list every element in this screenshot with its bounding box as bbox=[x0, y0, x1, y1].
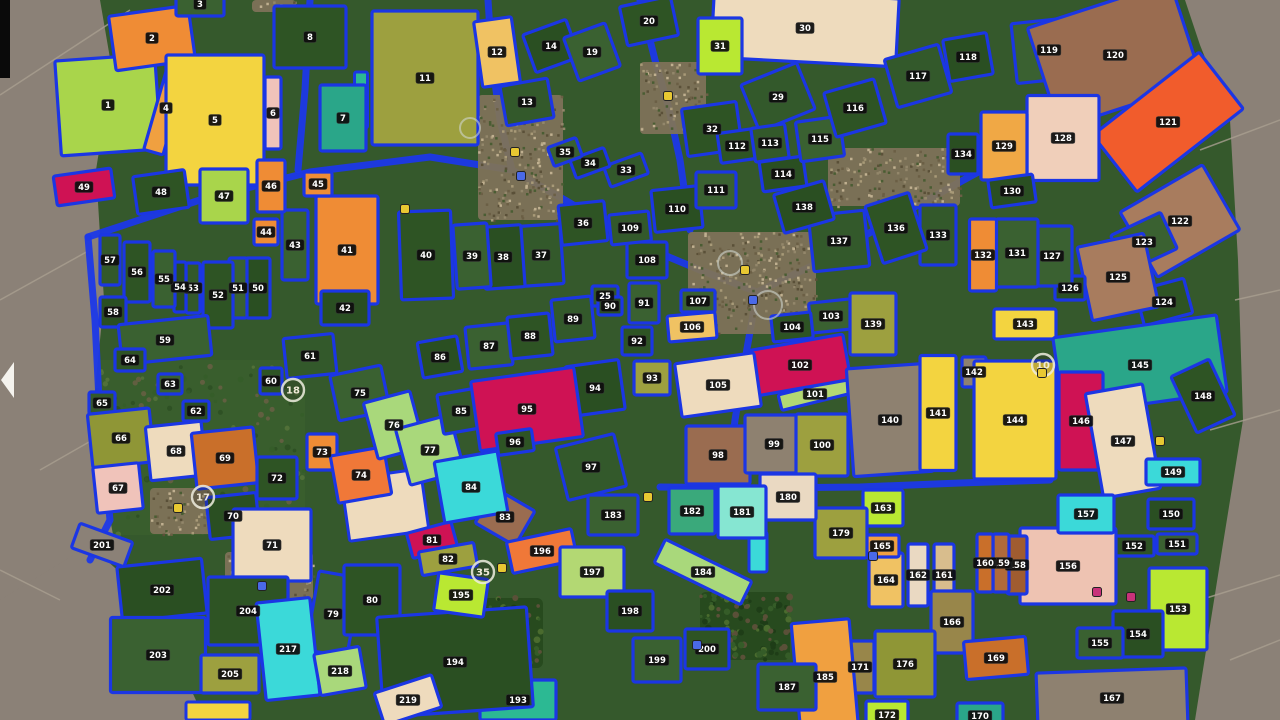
field-label-82: 82 bbox=[439, 554, 457, 566]
svg-text:63: 63 bbox=[164, 380, 176, 390]
field-label-54: 54 bbox=[171, 282, 189, 294]
svg-text:194: 194 bbox=[446, 658, 464, 668]
svg-text:92: 92 bbox=[631, 337, 643, 347]
svg-text:41: 41 bbox=[341, 246, 353, 256]
field-label-133: 133 bbox=[926, 230, 950, 242]
svg-text:39: 39 bbox=[466, 252, 478, 262]
svg-text:52: 52 bbox=[212, 291, 224, 301]
svg-text:196: 196 bbox=[533, 547, 551, 557]
field-label-94: 94 bbox=[586, 383, 604, 395]
svg-text:103: 103 bbox=[822, 312, 840, 322]
poi-badge-icon[interactable] bbox=[644, 493, 653, 502]
field-label-76: 76 bbox=[385, 420, 403, 432]
field-label-98: 98 bbox=[709, 450, 727, 462]
field-label-35: 35 bbox=[556, 147, 574, 159]
field-label-132: 132 bbox=[971, 250, 995, 262]
svg-text:12: 12 bbox=[491, 48, 503, 58]
field-label-160: 160 bbox=[973, 558, 997, 570]
poi-badge-icon[interactable] bbox=[258, 582, 267, 591]
svg-text:51: 51 bbox=[232, 284, 244, 294]
field-label-193: 193 bbox=[506, 695, 530, 707]
svg-text:68: 68 bbox=[170, 447, 182, 457]
field-label-99: 99 bbox=[765, 439, 783, 451]
svg-text:82: 82 bbox=[442, 555, 454, 565]
field-label-138: 138 bbox=[792, 202, 816, 214]
svg-text:133: 133 bbox=[929, 231, 947, 241]
svg-text:67: 67 bbox=[112, 484, 124, 494]
svg-text:34: 34 bbox=[584, 159, 596, 169]
field-label-139: 139 bbox=[861, 319, 885, 331]
svg-text:198: 198 bbox=[621, 607, 639, 617]
svg-text:59: 59 bbox=[159, 336, 171, 346]
svg-text:50: 50 bbox=[252, 284, 264, 294]
field-label-218: 218 bbox=[328, 666, 352, 678]
svg-text:17: 17 bbox=[196, 493, 210, 504]
svg-text:6: 6 bbox=[270, 109, 276, 119]
field-label-129: 129 bbox=[992, 141, 1016, 153]
svg-text:13: 13 bbox=[521, 98, 533, 108]
field-label-171: 171 bbox=[848, 662, 872, 674]
field-label-120: 120 bbox=[1103, 50, 1127, 62]
svg-text:100: 100 bbox=[813, 441, 831, 451]
field-label-217: 217 bbox=[276, 644, 300, 656]
svg-text:32: 32 bbox=[706, 125, 718, 135]
svg-text:36: 36 bbox=[577, 219, 589, 229]
field-label-112: 112 bbox=[725, 141, 749, 153]
field-label-170: 170 bbox=[968, 711, 992, 720]
field-label-69: 69 bbox=[216, 453, 234, 465]
field-label-134: 134 bbox=[951, 149, 975, 161]
field-label-110: 110 bbox=[665, 204, 689, 216]
svg-text:118: 118 bbox=[959, 53, 977, 63]
svg-text:11: 11 bbox=[419, 74, 431, 84]
field-label-5: 5 bbox=[209, 115, 222, 127]
svg-text:69: 69 bbox=[219, 454, 231, 464]
field-label-157: 157 bbox=[1074, 509, 1098, 521]
svg-text:40: 40 bbox=[420, 251, 432, 261]
field-label-161: 161 bbox=[932, 570, 956, 582]
field-label-108: 108 bbox=[635, 255, 659, 267]
field-map-screen: 1234567811121314192025293031323334353637… bbox=[0, 0, 1280, 720]
field-label-74: 74 bbox=[352, 470, 370, 482]
poi-badge-icon[interactable] bbox=[749, 296, 758, 305]
svg-text:185: 185 bbox=[816, 673, 834, 683]
field-label-145: 145 bbox=[1128, 360, 1152, 372]
field-label-58: 58 bbox=[104, 307, 122, 319]
svg-text:97: 97 bbox=[585, 463, 597, 473]
field-map[interactable]: 1234567811121314192025293031323334353637… bbox=[0, 0, 1280, 720]
svg-text:30: 30 bbox=[799, 24, 811, 34]
svg-text:187: 187 bbox=[778, 683, 796, 693]
poi-badge-icon[interactable] bbox=[498, 564, 507, 573]
field-label-93: 93 bbox=[643, 373, 661, 385]
svg-text:155: 155 bbox=[1091, 639, 1109, 649]
poi-badge-icon[interactable] bbox=[693, 641, 702, 650]
field-label-60: 60 bbox=[262, 376, 280, 388]
svg-text:18: 18 bbox=[286, 386, 300, 397]
field-label-102: 102 bbox=[788, 360, 812, 372]
field-label-125: 125 bbox=[1106, 272, 1130, 284]
field-label-153: 153 bbox=[1166, 604, 1190, 616]
poi-badge-icon[interactable] bbox=[1038, 369, 1047, 378]
svg-text:127: 127 bbox=[1043, 252, 1061, 262]
svg-text:85: 85 bbox=[455, 407, 467, 417]
field-label-196: 196 bbox=[530, 546, 554, 558]
field-label-6: 6 bbox=[267, 108, 280, 120]
svg-text:77: 77 bbox=[424, 446, 436, 456]
field-label-121: 121 bbox=[1156, 117, 1180, 129]
field-patch[interactable] bbox=[186, 702, 250, 720]
field-label-109: 109 bbox=[618, 223, 642, 235]
svg-text:119: 119 bbox=[1040, 46, 1058, 56]
field-label-202: 202 bbox=[150, 585, 174, 597]
field-label-7: 7 bbox=[337, 113, 350, 125]
svg-text:20: 20 bbox=[643, 17, 655, 27]
field-label-30: 30 bbox=[796, 23, 814, 35]
svg-text:73: 73 bbox=[316, 448, 328, 458]
svg-text:143: 143 bbox=[1016, 320, 1034, 330]
poi-marker-17[interactable]: 17 bbox=[192, 486, 214, 508]
svg-text:64: 64 bbox=[124, 356, 136, 366]
svg-text:141: 141 bbox=[929, 409, 947, 419]
svg-text:171: 171 bbox=[851, 663, 869, 673]
svg-text:80: 80 bbox=[366, 596, 378, 606]
field-label-12: 12 bbox=[488, 47, 506, 59]
svg-text:115: 115 bbox=[811, 135, 829, 145]
field-label-111: 111 bbox=[704, 185, 728, 197]
field-label-204: 204 bbox=[236, 606, 260, 618]
svg-text:132: 132 bbox=[974, 251, 992, 261]
svg-text:145: 145 bbox=[1131, 361, 1149, 371]
field-label-48: 48 bbox=[152, 187, 170, 199]
field-label-19: 19 bbox=[583, 47, 601, 59]
poi-badge-icon[interactable] bbox=[401, 205, 410, 214]
svg-text:88: 88 bbox=[524, 332, 536, 342]
svg-text:136: 136 bbox=[887, 224, 905, 234]
svg-text:87: 87 bbox=[483, 342, 495, 352]
field-label-115: 115 bbox=[808, 134, 832, 146]
svg-text:204: 204 bbox=[239, 607, 257, 617]
svg-text:91: 91 bbox=[638, 299, 650, 309]
field-label-72: 72 bbox=[268, 473, 286, 485]
svg-text:201: 201 bbox=[93, 541, 111, 551]
field-label-149: 149 bbox=[1161, 467, 1185, 479]
field-label-155: 155 bbox=[1088, 638, 1112, 650]
svg-text:76: 76 bbox=[388, 421, 400, 431]
svg-text:33: 33 bbox=[620, 166, 632, 176]
svg-text:218: 218 bbox=[331, 667, 349, 677]
svg-text:38: 38 bbox=[497, 253, 509, 263]
field-label-45: 45 bbox=[309, 179, 327, 191]
field-label-83: 83 bbox=[496, 512, 514, 524]
field-label-219: 219 bbox=[396, 695, 420, 707]
field-label-199: 199 bbox=[645, 655, 669, 667]
poi-badge-icon[interactable] bbox=[1093, 588, 1102, 597]
svg-text:142: 142 bbox=[965, 368, 983, 378]
svg-text:116: 116 bbox=[846, 104, 864, 114]
field-label-51: 51 bbox=[229, 283, 247, 295]
field-label-203: 203 bbox=[146, 650, 170, 662]
field-label-106: 106 bbox=[680, 322, 704, 334]
field-label-144: 144 bbox=[1003, 415, 1027, 427]
svg-text:202: 202 bbox=[153, 586, 171, 596]
field-label-97: 97 bbox=[582, 462, 600, 474]
svg-text:146: 146 bbox=[1072, 417, 1090, 427]
field-label-84: 84 bbox=[462, 482, 480, 494]
svg-text:106: 106 bbox=[683, 323, 701, 333]
field-label-67: 67 bbox=[109, 483, 127, 495]
field-label-107: 107 bbox=[686, 296, 710, 308]
field-label-198: 198 bbox=[618, 606, 642, 618]
svg-text:152: 152 bbox=[1125, 542, 1143, 552]
svg-text:60: 60 bbox=[265, 377, 277, 387]
field-label-185: 185 bbox=[813, 672, 837, 684]
field-label-43: 43 bbox=[286, 240, 304, 252]
svg-text:182: 182 bbox=[683, 507, 701, 517]
field-label-182: 182 bbox=[680, 506, 704, 518]
field-label-81: 81 bbox=[423, 535, 441, 547]
field-label-33: 33 bbox=[617, 165, 635, 177]
svg-text:205: 205 bbox=[221, 670, 239, 680]
svg-text:79: 79 bbox=[327, 610, 339, 620]
field-label-197: 197 bbox=[580, 567, 604, 579]
poi-badge-icon[interactable] bbox=[1156, 437, 1165, 446]
field-label-68: 68 bbox=[167, 446, 185, 458]
svg-text:165: 165 bbox=[873, 542, 891, 552]
svg-text:57: 57 bbox=[104, 256, 116, 266]
field-label-37: 37 bbox=[532, 250, 550, 262]
field-label-64: 64 bbox=[121, 355, 139, 367]
field-label-184: 184 bbox=[691, 567, 715, 579]
field-label-131: 131 bbox=[1005, 248, 1029, 260]
field-label-126: 126 bbox=[1058, 283, 1082, 295]
field-label-195: 195 bbox=[449, 590, 473, 602]
svg-text:157: 157 bbox=[1077, 510, 1095, 520]
svg-text:147: 147 bbox=[1114, 437, 1132, 447]
field-label-130: 130 bbox=[1000, 186, 1024, 198]
field-label-57: 57 bbox=[101, 255, 119, 267]
svg-text:138: 138 bbox=[795, 203, 813, 213]
svg-text:56: 56 bbox=[131, 268, 143, 278]
field-label-141: 141 bbox=[926, 408, 950, 420]
field-label-113: 113 bbox=[758, 138, 782, 150]
field-label-136: 136 bbox=[884, 223, 908, 235]
svg-text:74: 74 bbox=[355, 471, 367, 481]
svg-text:108: 108 bbox=[638, 256, 656, 266]
svg-text:86: 86 bbox=[434, 353, 446, 363]
svg-text:172: 172 bbox=[878, 711, 896, 720]
svg-text:55: 55 bbox=[158, 275, 170, 285]
svg-text:75: 75 bbox=[354, 389, 366, 399]
svg-text:170: 170 bbox=[971, 712, 989, 720]
field-label-61: 61 bbox=[301, 351, 319, 363]
field-label-47: 47 bbox=[215, 191, 233, 203]
svg-text:35: 35 bbox=[476, 568, 490, 579]
field-label-187: 187 bbox=[775, 682, 799, 694]
svg-text:114: 114 bbox=[774, 170, 792, 180]
field-label-92: 92 bbox=[628, 336, 646, 348]
field-label-146: 146 bbox=[1069, 416, 1093, 428]
field-label-50: 50 bbox=[249, 283, 267, 295]
svg-text:109: 109 bbox=[621, 224, 639, 234]
field-label-56: 56 bbox=[128, 267, 146, 279]
field-label-75: 75 bbox=[351, 388, 369, 400]
poi-badge-icon[interactable] bbox=[664, 92, 673, 101]
field-label-8: 8 bbox=[304, 32, 317, 44]
field-label-194: 194 bbox=[443, 657, 467, 669]
field-label-96: 96 bbox=[506, 437, 524, 449]
svg-text:43: 43 bbox=[289, 241, 301, 251]
svg-text:151: 151 bbox=[1168, 540, 1186, 550]
svg-text:61: 61 bbox=[304, 352, 316, 362]
field-label-140: 140 bbox=[878, 415, 902, 427]
svg-text:150: 150 bbox=[1162, 510, 1180, 520]
field-label-122: 122 bbox=[1168, 216, 1192, 228]
field-label-80: 80 bbox=[363, 595, 381, 607]
field-label-90: 90 bbox=[601, 301, 619, 313]
field-label-152: 152 bbox=[1122, 541, 1146, 553]
svg-text:65: 65 bbox=[96, 399, 108, 409]
svg-text:113: 113 bbox=[761, 139, 779, 149]
poi-marker-35[interactable]: 35 bbox=[472, 561, 494, 583]
field-label-123: 123 bbox=[1132, 237, 1156, 249]
poi-marker-18[interactable]: 18 bbox=[282, 379, 304, 401]
svg-text:107: 107 bbox=[689, 297, 707, 307]
field-label-66: 66 bbox=[112, 433, 130, 445]
svg-text:179: 179 bbox=[832, 529, 850, 539]
svg-text:93: 93 bbox=[646, 374, 658, 384]
svg-text:163: 163 bbox=[874, 504, 892, 514]
svg-text:217: 217 bbox=[279, 645, 297, 655]
field-label-40: 40 bbox=[417, 250, 435, 262]
field-label-70: 70 bbox=[224, 511, 242, 523]
poi-badge-icon[interactable] bbox=[1127, 593, 1136, 602]
field-label-142: 142 bbox=[962, 367, 986, 379]
field-label-85: 85 bbox=[452, 406, 470, 418]
poi-badge-icon[interactable] bbox=[741, 266, 750, 275]
svg-text:110: 110 bbox=[668, 205, 686, 215]
field-label-59: 59 bbox=[156, 335, 174, 347]
svg-text:83: 83 bbox=[499, 513, 511, 523]
svg-text:96: 96 bbox=[509, 438, 521, 448]
poi-badge-icon[interactable] bbox=[869, 552, 878, 561]
field-label-32: 32 bbox=[703, 124, 721, 136]
field-label-119: 119 bbox=[1037, 45, 1061, 57]
svg-text:72: 72 bbox=[271, 474, 283, 484]
poi-badge-icon[interactable] bbox=[174, 504, 183, 513]
field-label-79: 79 bbox=[324, 609, 342, 621]
svg-text:134: 134 bbox=[954, 150, 972, 160]
field-label-164: 164 bbox=[874, 575, 898, 587]
field-label-176: 176 bbox=[893, 659, 917, 671]
field-label-118: 118 bbox=[956, 52, 980, 64]
svg-text:154: 154 bbox=[1129, 630, 1147, 640]
field-label-181: 181 bbox=[730, 507, 754, 519]
svg-text:123: 123 bbox=[1135, 238, 1153, 248]
field-label-52: 52 bbox=[209, 290, 227, 302]
svg-text:94: 94 bbox=[589, 384, 601, 394]
svg-text:5: 5 bbox=[212, 116, 218, 126]
field-label-91: 91 bbox=[635, 298, 653, 310]
field-label-183: 183 bbox=[601, 510, 625, 522]
svg-text:180: 180 bbox=[779, 493, 797, 503]
field-label-62: 62 bbox=[187, 406, 205, 418]
svg-text:176: 176 bbox=[896, 660, 914, 670]
field-label-169: 169 bbox=[984, 653, 1008, 665]
svg-text:71: 71 bbox=[266, 541, 278, 551]
svg-text:4: 4 bbox=[163, 104, 169, 114]
field-label-117: 117 bbox=[906, 71, 930, 83]
svg-text:184: 184 bbox=[694, 568, 712, 578]
svg-text:125: 125 bbox=[1109, 273, 1127, 283]
svg-text:105: 105 bbox=[709, 381, 727, 391]
field-label-88: 88 bbox=[521, 331, 539, 343]
field-label-103: 103 bbox=[819, 311, 843, 323]
svg-text:144: 144 bbox=[1006, 416, 1024, 426]
field-label-137: 137 bbox=[827, 236, 851, 248]
svg-text:95: 95 bbox=[521, 405, 533, 415]
svg-text:140: 140 bbox=[881, 416, 899, 426]
svg-text:148: 148 bbox=[1194, 392, 1212, 402]
field-label-156: 156 bbox=[1056, 561, 1080, 573]
svg-text:58: 58 bbox=[107, 308, 119, 318]
poi-badge-icon[interactable] bbox=[517, 172, 526, 181]
svg-text:126: 126 bbox=[1061, 284, 1079, 294]
field-label-31: 31 bbox=[711, 41, 729, 53]
field-label-77: 77 bbox=[421, 445, 439, 457]
field-label-180: 180 bbox=[776, 492, 800, 504]
field-label-101: 101 bbox=[803, 389, 827, 401]
field-label-44: 44 bbox=[257, 227, 275, 239]
field-label-1: 1 bbox=[102, 100, 115, 112]
field-label-36: 36 bbox=[574, 218, 592, 230]
field-label-128: 128 bbox=[1051, 133, 1075, 145]
svg-text:45: 45 bbox=[312, 180, 324, 190]
field-label-179: 179 bbox=[829, 528, 853, 540]
field-label-127: 127 bbox=[1040, 251, 1064, 263]
svg-text:149: 149 bbox=[1164, 468, 1182, 478]
field-label-162: 162 bbox=[906, 570, 930, 582]
svg-text:153: 153 bbox=[1169, 605, 1187, 615]
svg-text:81: 81 bbox=[426, 536, 438, 546]
field-label-201: 201 bbox=[90, 540, 114, 552]
field-label-163: 163 bbox=[871, 503, 895, 515]
svg-text:219: 219 bbox=[399, 696, 417, 706]
poi-badge-icon[interactable] bbox=[511, 148, 520, 157]
field-label-167: 167 bbox=[1100, 693, 1124, 705]
svg-text:124: 124 bbox=[1155, 298, 1173, 308]
field-label-150: 150 bbox=[1159, 509, 1183, 521]
svg-text:46: 46 bbox=[265, 182, 277, 192]
svg-text:42: 42 bbox=[339, 304, 351, 314]
svg-text:161: 161 bbox=[935, 571, 953, 581]
field-label-116: 116 bbox=[843, 103, 867, 115]
svg-text:54: 54 bbox=[174, 283, 186, 293]
svg-text:197: 197 bbox=[583, 568, 601, 578]
svg-text:98: 98 bbox=[712, 451, 724, 461]
svg-text:66: 66 bbox=[115, 434, 127, 444]
svg-text:121: 121 bbox=[1159, 118, 1177, 128]
svg-text:122: 122 bbox=[1171, 217, 1189, 227]
field-label-13: 13 bbox=[518, 97, 536, 109]
svg-text:8: 8 bbox=[307, 33, 313, 43]
svg-text:156: 156 bbox=[1059, 562, 1077, 572]
svg-text:199: 199 bbox=[648, 656, 666, 666]
svg-text:49: 49 bbox=[78, 183, 90, 193]
svg-text:137: 137 bbox=[830, 237, 848, 247]
field-label-172: 172 bbox=[875, 710, 899, 720]
field-label-65: 65 bbox=[93, 398, 111, 410]
